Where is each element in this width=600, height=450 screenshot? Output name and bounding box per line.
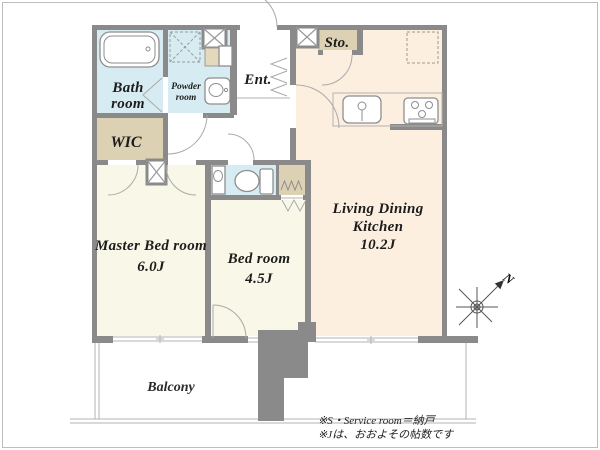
- compass-north-label: N: [500, 269, 518, 288]
- bedroom-label: Bed room: [227, 251, 291, 267]
- shelf-box: [205, 48, 219, 66]
- ldk-floor: [296, 30, 442, 336]
- cabinet-box: [219, 46, 232, 66]
- master-bedroom-size-label: 6.0J: [137, 259, 165, 275]
- compass-icon: [456, 280, 504, 328]
- ldk-label-1: Living Dining: [332, 201, 424, 217]
- bathtub-icon: [100, 32, 159, 67]
- floor-plan: Bath room Powder room WIC Ent. Sto. Livi…: [0, 0, 600, 450]
- wic-label: WIC: [110, 134, 141, 151]
- entrance-label: Ent.: [243, 72, 271, 88]
- stove-icon: [404, 98, 438, 124]
- ldk-label-2: Kitchen: [352, 219, 403, 235]
- powder-door-arc: [168, 115, 207, 154]
- vanity-sink-icon: [205, 78, 230, 104]
- balcony-label: Balcony: [146, 380, 195, 395]
- bedroom-floor: [211, 200, 305, 336]
- master-bedroom-label: Master Bed room: [94, 238, 207, 254]
- toilet-icon: [235, 169, 273, 194]
- closet-floor: [279, 165, 305, 195]
- ldk-size-label: 10.2J: [360, 237, 395, 253]
- powder-room-label-1: Powder: [171, 82, 201, 92]
- pillar-icon: [296, 27, 318, 47]
- note-line-1: ※S・Service room＝納戸: [318, 414, 437, 427]
- hand-sink-icon: [212, 166, 225, 194]
- kitchen-sink-icon: [343, 96, 381, 123]
- entrance-door-arc: [240, 0, 277, 27]
- bedroom-size-label: 4.5J: [244, 271, 273, 287]
- toilet-door-arc: [228, 134, 254, 160]
- powder-room-label-2: room: [176, 93, 197, 103]
- bath-room-label-2: room: [111, 96, 145, 112]
- storage-label: Sto.: [325, 35, 350, 51]
- ldk-window: [315, 336, 418, 344]
- master-window: [112, 335, 205, 343]
- pillar-icon: [203, 28, 226, 48]
- bath-room-label-1: Bath: [111, 80, 143, 96]
- pillar-icon: [147, 160, 166, 184]
- balcony-pillar: [258, 322, 316, 421]
- shoe-storage-icon: [271, 58, 287, 96]
- note-line-2: ※Jは、おおよその帖数です: [318, 428, 455, 441]
